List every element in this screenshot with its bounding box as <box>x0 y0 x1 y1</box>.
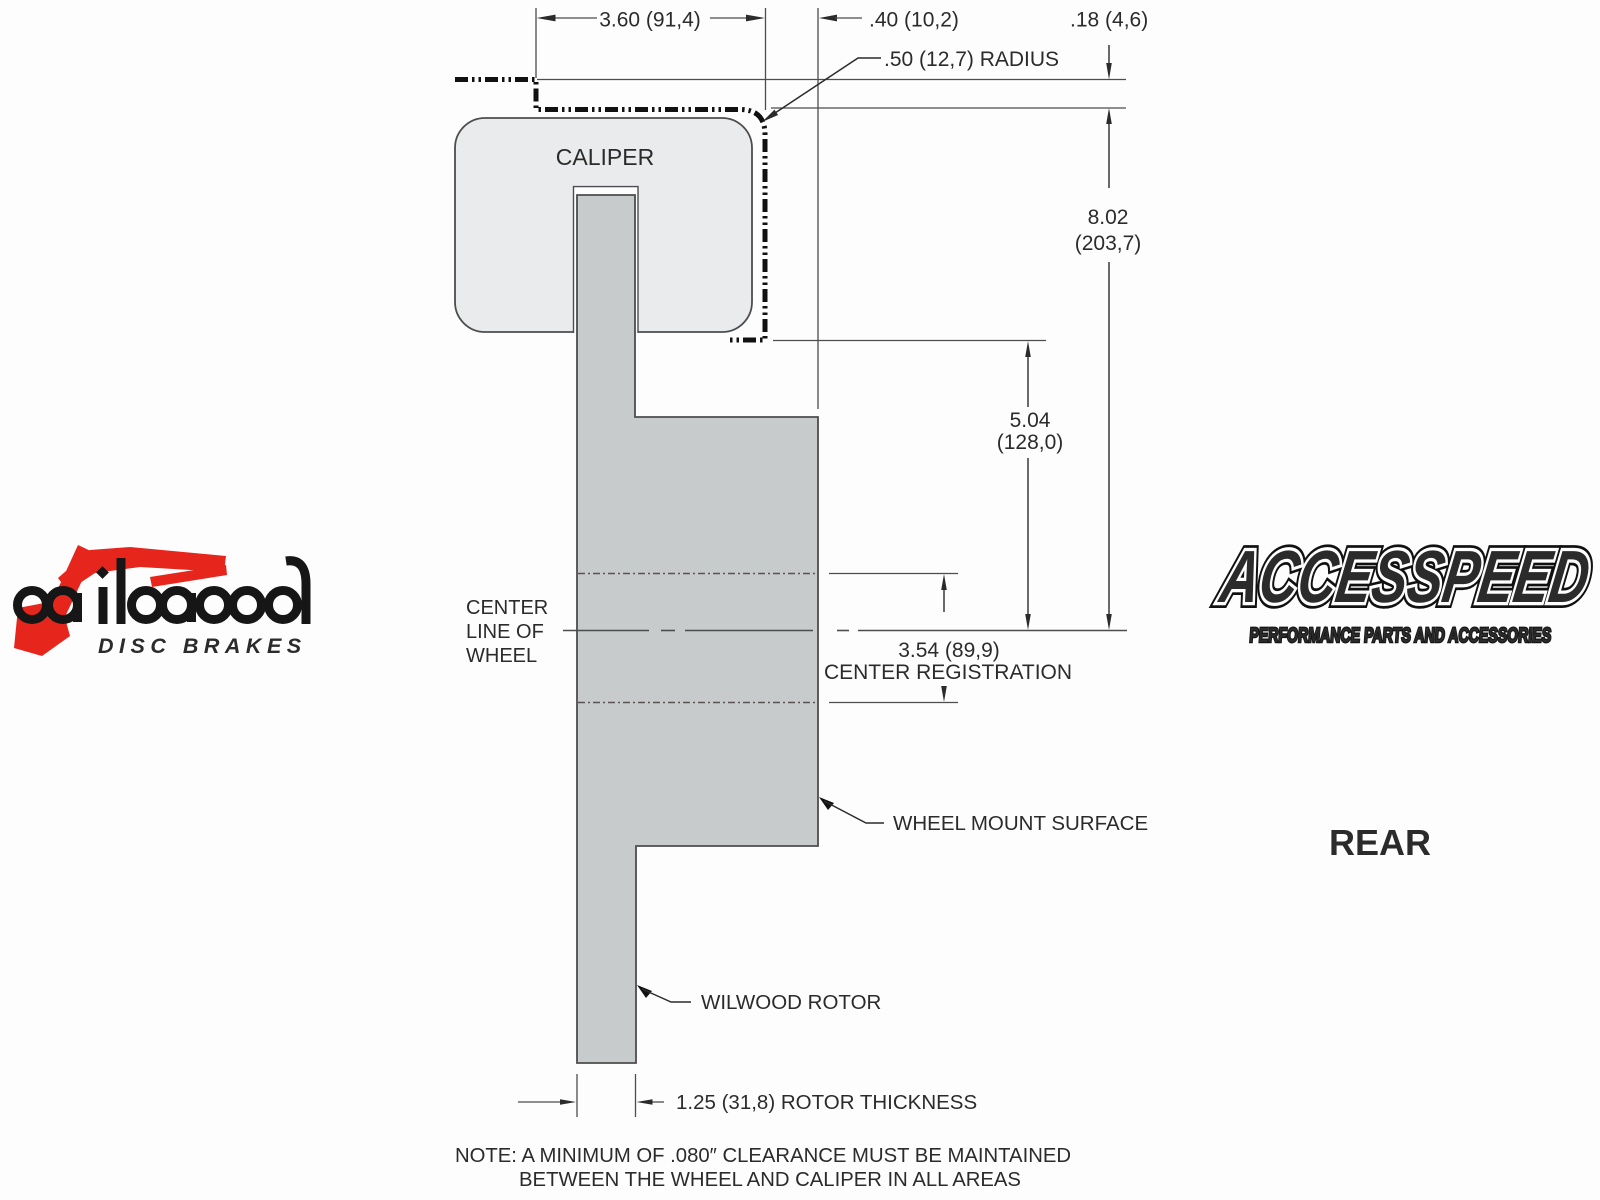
svg-text:CENTER REGISTRATION: CENTER REGISTRATION <box>824 661 1072 684</box>
svg-text:CALIPER: CALIPER <box>556 144 654 170</box>
svg-text:WILWOOD ROTOR: WILWOOD ROTOR <box>701 991 881 1014</box>
svg-text:DISC BRAKES: DISC BRAKES <box>98 634 307 658</box>
svg-text:CENTER: CENTER <box>466 597 548 619</box>
svg-text:.18 (4,6): .18 (4,6) <box>1070 9 1148 32</box>
svg-text:WHEEL: WHEEL <box>466 645 537 667</box>
svg-text:BETWEEN THE WHEEL AND CALIPER: BETWEEN THE WHEEL AND CALIPER IN ALL ARE… <box>519 1169 1021 1191</box>
svg-text:(203,7): (203,7) <box>1075 232 1142 255</box>
svg-text:REAR: REAR <box>1329 822 1431 863</box>
svg-text:1.25 (31,8) ROTOR THICKNESS: 1.25 (31,8) ROTOR THICKNESS <box>676 1091 977 1114</box>
svg-text:3.54 (89,9): 3.54 (89,9) <box>898 639 1000 662</box>
svg-text:5.04: 5.04 <box>1010 409 1051 432</box>
svg-text:PERFORMANCE PARTS AND ACCESSOR: PERFORMANCE PARTS AND ACCESSORIES <box>1249 623 1553 646</box>
svg-text:3.60 (91,4): 3.60 (91,4) <box>599 9 701 32</box>
svg-text:.40 (10,2): .40 (10,2) <box>869 9 959 32</box>
svg-text:(128,0): (128,0) <box>997 431 1064 454</box>
svg-text:WHEEL MOUNT SURFACE: WHEEL MOUNT SURFACE <box>893 812 1148 835</box>
svg-text:ACCESSPEED: ACCESSPEED <box>1214 535 1595 618</box>
svg-text:.50 (12,7) RADIUS: .50 (12,7) RADIUS <box>884 48 1059 71</box>
svg-text:8.02: 8.02 <box>1088 206 1129 229</box>
svg-text:NOTE: A MINIMUM OF .080″ CLEAR: NOTE: A MINIMUM OF .080″ CLEARANCE MUST … <box>455 1145 1071 1167</box>
svg-text:LINE OF: LINE OF <box>466 621 544 643</box>
